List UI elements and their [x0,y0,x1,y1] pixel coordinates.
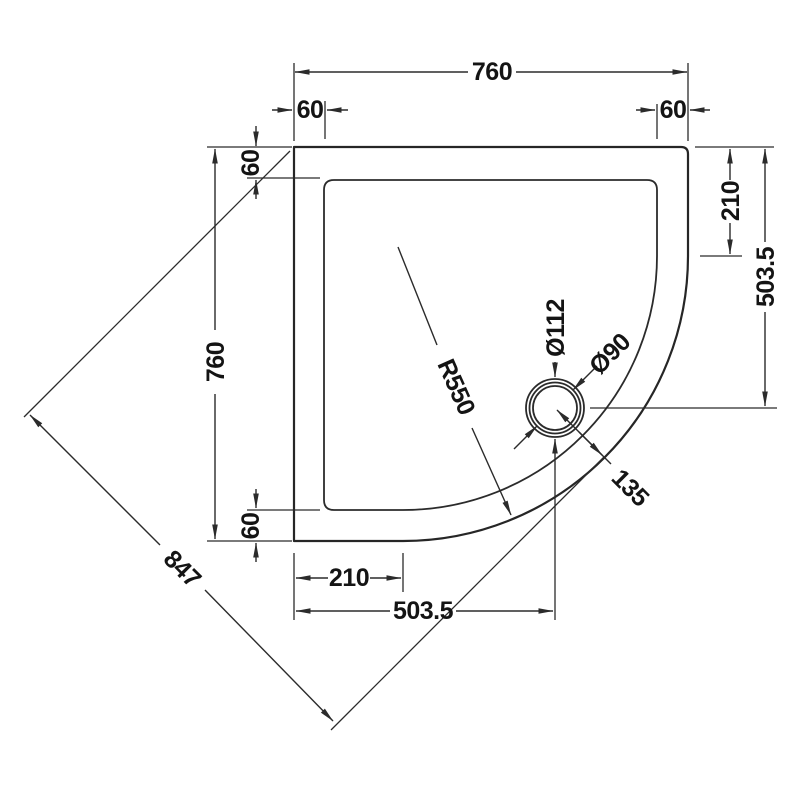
dim-label-bottom-straight: 210 [329,564,369,592]
technical-drawing-canvas: 760 60 60 60 760 60 210 503.5 210 503.5 … [0,0,800,799]
dim-label-diagonal: 847 [158,545,206,593]
dim-label-bottom-to-drain: 503.5 [393,597,454,625]
dim-label-drain-to-corner: 135 [606,464,655,513]
dim-label-drain-outer-diameter: Ø112 [542,299,570,357]
radius-leader-line [398,247,437,345]
shower-tray-dimension-diagram: 760 60 60 60 760 60 210 503.5 210 503.5 … [0,0,800,799]
radius-leader-arrow [472,428,511,515]
diagonal-extension-from-arc [331,457,604,730]
dim-label-corner-radius: R550 [431,355,480,419]
dim-label-right-straight: 210 [717,181,745,221]
dim-label-ledge-top-left: 60 [297,96,324,124]
dim-label-height-left: 760 [202,342,230,382]
dimension-labels: 760 60 60 60 760 60 210 503.5 210 503.5 … [158,58,780,625]
dim-label-ledge-left-bottom: 60 [237,513,265,540]
dim-label-ledge-left-top: 60 [237,150,265,177]
dim-label-width-top: 760 [472,58,512,86]
dim-label-right-to-drain: 503.5 [752,246,780,307]
extension-lines [24,63,777,730]
diagonal-extension-from-corner [24,151,290,417]
dim-label-ledge-top-right: 60 [660,96,687,124]
